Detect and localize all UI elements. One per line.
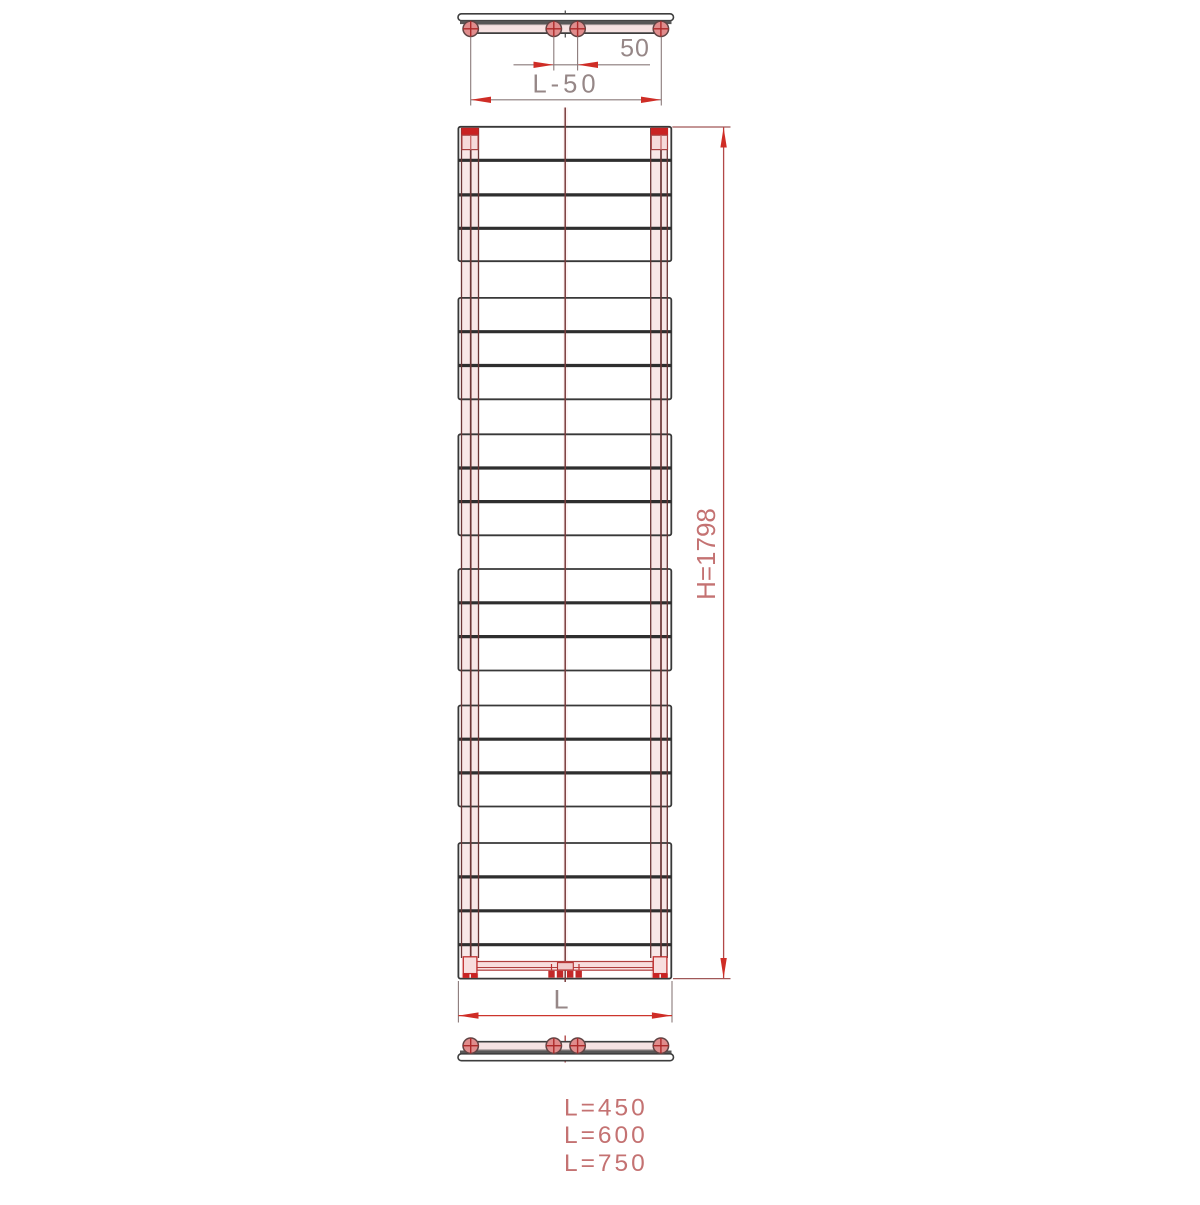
svg-text:50: 50: [620, 34, 650, 62]
svg-text:L=600: L=600: [564, 1122, 648, 1149]
svg-text:H=1798: H=1798: [691, 508, 721, 600]
svg-text:L=450: L=450: [564, 1094, 648, 1121]
svg-text:L=750: L=750: [564, 1150, 648, 1177]
svg-text:L: L: [553, 985, 568, 1015]
svg-text:L-50: L-50: [532, 71, 599, 99]
